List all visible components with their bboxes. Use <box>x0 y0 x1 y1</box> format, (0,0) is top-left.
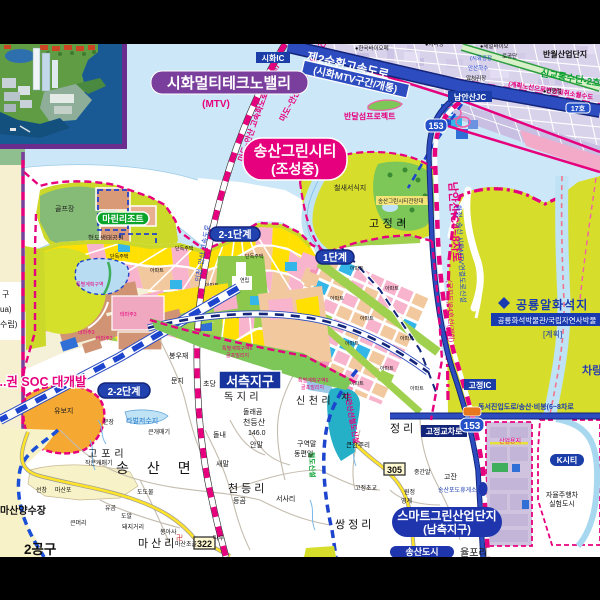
svg-text:안말: 안말 <box>250 440 263 449</box>
svg-text:서측지구: 서측지구 <box>226 374 274 389</box>
svg-text:봉우재: 봉우재 <box>169 352 188 360</box>
svg-text:17호: 17호 <box>571 104 586 113</box>
svg-text:2-2단계: 2-2단계 <box>108 385 141 398</box>
svg-text:차량: 차량 <box>582 363 600 377</box>
svg-text:선창: 선창 <box>36 486 48 494</box>
svg-text:322: 322 <box>197 539 212 549</box>
svg-text:치: 치 <box>341 391 349 402</box>
svg-text:305: 305 <box>387 465 402 475</box>
svg-text:천등산: 천등산 <box>243 417 266 427</box>
svg-text:(시화공장: (시화공장 <box>470 55 492 62</box>
svg-text:문지: 문지 <box>171 376 184 385</box>
svg-text:고정IC: 고정IC <box>469 380 492 390</box>
svg-text:아파트: 아파트 <box>345 340 359 347</box>
svg-text:독지리: 독지리 <box>224 391 262 403</box>
svg-text:송산면: 송산면 <box>116 460 209 476</box>
svg-text:특별계획구역: 특별계획구역 <box>76 281 104 288</box>
svg-text:卍: 卍 <box>176 534 183 542</box>
svg-text:천등리: 천등리 <box>228 481 267 495</box>
svg-text:K시티: K시티 <box>557 455 578 465</box>
svg-text:돌내: 돌내 <box>213 430 226 439</box>
svg-text:동서진입도로/송산·비봉(6~8차로: 동서진입도로/송산·비봉(6~8차로 <box>478 402 574 411</box>
svg-text:146.0: 146.0 <box>248 430 266 437</box>
svg-text:도도물: 도도물 <box>137 489 154 496</box>
svg-text:돌래곰: 돌래곰 <box>243 407 263 416</box>
svg-text:산업용지: 산업용지 <box>499 437 521 445</box>
svg-text:새말: 새말 <box>216 459 229 468</box>
svg-text:송산그린시티전망대: 송산그린시티전망대 <box>378 197 424 205</box>
svg-text:철새서식지: 철새서식지 <box>334 183 366 192</box>
svg-text:153: 153 <box>428 121 443 131</box>
svg-text:원정: 원정 <box>404 488 415 496</box>
svg-text:다루: 다루 <box>213 534 225 542</box>
svg-text:고정교차로: 고정교차로 <box>426 426 463 436</box>
svg-text:테마주3: 테마주3 <box>120 311 137 318</box>
svg-text:유보지: 유보지 <box>54 406 73 415</box>
svg-text:공룡알화석지: 공룡알화석지 <box>516 297 588 312</box>
svg-text:시화IC: 시화IC <box>262 53 285 63</box>
svg-text:문장: 문장 <box>103 418 115 426</box>
svg-text:아파트: 아파트 <box>385 285 399 292</box>
svg-text:남안산JC: 남안산JC <box>454 92 487 102</box>
svg-text:●한국바이오메: ●한국바이오메 <box>355 44 389 52</box>
svg-text:단독주택: 단독주택 <box>245 253 264 260</box>
svg-text:[계획]: [계획] <box>543 329 562 339</box>
svg-text:마산리: 마산리 <box>138 537 177 550</box>
svg-text:아파트: 아파트 <box>380 365 394 372</box>
svg-text:안산하수: 안산하수 <box>468 64 488 72</box>
svg-text:아파트: 아파트 <box>150 267 164 274</box>
svg-text:아파트: 아파트 <box>360 315 374 322</box>
svg-text:고포리: 고포리 <box>88 448 128 460</box>
svg-text:돼지거리: 돼지거리 <box>122 523 144 531</box>
svg-text:영계: 영계 <box>401 497 412 505</box>
svg-text:동편일: 동편일 <box>294 449 313 458</box>
svg-text:아파트: 아파트 <box>350 265 364 272</box>
svg-text:골프장: 골프장 <box>55 204 75 213</box>
svg-text:송산그린시티: 송산그린시티 <box>254 142 337 160</box>
svg-text:정리: 정리 <box>390 422 416 435</box>
svg-text:아파트: 아파트 <box>410 385 424 392</box>
svg-text:(MTV): (MTV) <box>202 99 230 110</box>
svg-text:마산포: 마산포 <box>55 486 72 494</box>
svg-text:큰개매기: 큰개매기 <box>148 428 170 436</box>
svg-text:연립: 연립 <box>240 277 249 284</box>
svg-text:2공구: 2공구 <box>24 542 56 557</box>
svg-text:아파트: 아파트 <box>330 295 344 302</box>
svg-text:단독주택: 단독주택 <box>175 245 194 252</box>
svg-text:로공단: 로공단 <box>502 52 517 60</box>
svg-text:송산포도휴게소: 송산포도휴게소 <box>438 486 477 494</box>
svg-text:특별계획구역6: 특별계획구역6 <box>222 345 253 352</box>
svg-text:골프빌리지: 골프빌리지 <box>301 384 324 391</box>
svg-text:신천리: 신천리 <box>296 395 334 407</box>
svg-text:...권 SOC 대개발: ...권 SOC 대개발 <box>0 374 87 389</box>
svg-text:도알: 도알 <box>121 512 133 520</box>
svg-text:공룡화석박물관/국립자연사박물: 공룡화석박물관/국립자연사박물 <box>498 315 597 325</box>
svg-text:시화멀티테크노밸리: 시화멀티테크노밸리 <box>167 75 291 92</box>
svg-text:작은개매기: 작은개매기 <box>85 459 113 467</box>
svg-text:2-1단계: 2-1단계 <box>219 228 252 241</box>
svg-text:반달섬프로젝트: 반달섬프로젝트 <box>344 111 396 121</box>
svg-text:ua): ua) <box>0 305 12 314</box>
svg-text:쌍정리: 쌍정리 <box>335 518 374 531</box>
svg-text:유곰: 유곰 <box>105 505 117 512</box>
svg-text:고정리: 고정리 <box>369 217 410 230</box>
svg-text:아파트: 아파트 <box>400 335 414 342</box>
svg-text:수립): 수립) <box>0 320 18 329</box>
svg-text:고잔: 고잔 <box>444 472 457 481</box>
svg-text:중간알: 중간알 <box>414 468 431 476</box>
svg-text:라벌저수지: 라벌저수지 <box>126 416 158 425</box>
svg-text:마산양수장: 마산양수장 <box>0 504 47 517</box>
svg-text:등곰: 등곰 <box>233 497 246 505</box>
svg-text:특별계획구역6: 특별계획구역6 <box>298 377 329 384</box>
svg-text:자율주행차: 자율주행차 <box>546 490 579 499</box>
svg-text:구역말: 구역말 <box>297 439 317 448</box>
svg-text:고정초교: 고정초교 <box>355 485 378 492</box>
svg-text:반월산업단지: 반월산업단지 <box>543 49 587 59</box>
svg-text:송산도시: 송산도시 <box>405 546 438 557</box>
svg-text:스마트그린산업단지: 스마트그린산업단지 <box>397 508 496 523</box>
svg-text:큰머리: 큰머리 <box>70 519 87 527</box>
svg-text:봉아사: 봉아사 <box>160 528 177 536</box>
svg-text:마린리조트: 마린리조트 <box>102 213 144 224</box>
svg-text:153: 153 <box>464 421 481 432</box>
svg-text:초당: 초당 <box>203 379 216 388</box>
svg-text:서사리: 서사리 <box>276 494 295 503</box>
svg-text:(남측지구): (남측지구) <box>423 522 471 536</box>
svg-text:구: 구 <box>2 290 9 299</box>
svg-text:(조성중): (조성중) <box>271 161 319 177</box>
svg-text:골프빌리지: 골프빌리지 <box>226 352 249 359</box>
svg-text:단독주택: 단독주택 <box>110 253 129 260</box>
svg-text:1단계: 1단계 <box>323 251 347 264</box>
svg-text:실험도시: 실험도시 <box>549 499 575 508</box>
